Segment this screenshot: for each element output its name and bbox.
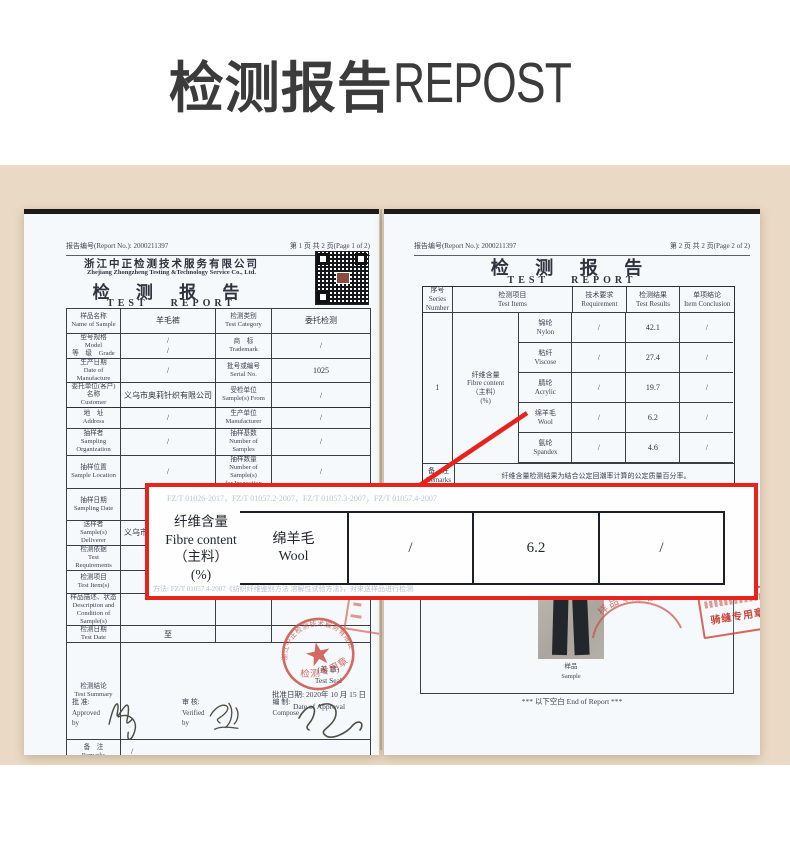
company-name-en: Zhejiang Zhongzheng Testing &Technology … bbox=[24, 269, 319, 276]
fiber-requirement: / bbox=[572, 403, 626, 433]
row-label-1: 检测依据 Test Requirements bbox=[67, 546, 121, 571]
callout-pointer-line bbox=[410, 406, 540, 490]
row-value-2: / bbox=[272, 429, 371, 456]
row-label-1: 生产日期 Date of Manufacture bbox=[67, 358, 121, 383]
row-label-1: 样品描述、状态 Description and Condition of Sam… bbox=[67, 593, 121, 626]
verify-signature-group: 审 核: Verified by bbox=[182, 691, 247, 739]
row-value-1: 羊毛裤 bbox=[121, 309, 216, 334]
approve-signature-group: 批 准: Approved by bbox=[72, 691, 156, 739]
row-value-1: 义乌市奥莉针织有限公司 bbox=[121, 383, 216, 408]
row-value-1: / bbox=[121, 358, 216, 383]
callout-table-row: 绵羊毛 Wool / 6.2 / bbox=[240, 511, 725, 585]
zoom-callout-box: FZ/T 01026-2017，FZ/T 01057.2-2007，FZ/T 0… bbox=[145, 483, 758, 600]
fiber-result: 19.7 bbox=[626, 373, 680, 403]
fiber-row: 腈纶 Acrylic / 19.7 / bbox=[519, 373, 734, 403]
fiber-conclusion: / bbox=[680, 433, 733, 463]
col-header-conclusion: 单项结论 Item Conclusion bbox=[680, 287, 734, 313]
remarks-label: 备 注 Remarks bbox=[67, 740, 121, 755]
compose-signature bbox=[293, 691, 373, 739]
fiber-conclusion: / bbox=[680, 403, 733, 433]
table-row: 委托单位(客户)名称 Customer 义乌市奥莉针织有限公司 受检单位 Sam… bbox=[67, 383, 371, 408]
row-label-2: 批号或编号 Serial No. bbox=[216, 358, 272, 383]
fiber-requirement: / bbox=[572, 433, 626, 463]
banner: 检测报告REPOST bbox=[0, 0, 790, 165]
table-row: 样品名称 Name of Sample 羊毛裤 检测类别 Test Catego… bbox=[67, 309, 371, 334]
row-value-1: / / bbox=[121, 334, 216, 359]
doc-title-en: TEST REPORT bbox=[384, 275, 760, 286]
verify-signature bbox=[204, 691, 247, 739]
row-label-1: 检测日期 Test Date bbox=[67, 626, 121, 643]
row-label-1: 抽样位置 Sample Location bbox=[67, 456, 121, 489]
fiber-row: 氨纶 Spandex / 4.6 / bbox=[519, 433, 734, 463]
results-table-header: 序号 Series Number 检测项目 Test Items 技术要求 Re… bbox=[423, 287, 734, 313]
row-value-1: 至 bbox=[121, 626, 216, 643]
row-label-2: 生产单位 Manufacturer bbox=[216, 408, 272, 429]
qr-finder-icon bbox=[317, 253, 329, 265]
row-label-2: 抽样基数 Number of Samples bbox=[216, 429, 272, 456]
row-value-2: / bbox=[272, 383, 371, 408]
row-label-2: 检测类别 Test Category bbox=[216, 309, 272, 334]
row-value-2: 1025 bbox=[272, 358, 371, 383]
approve-signature bbox=[100, 691, 157, 739]
row-label-2: 受检单位 Sample(s) From bbox=[216, 383, 272, 408]
table-row: 型号规格 Model 等 级 Grade / / 商 标 Trademark / bbox=[67, 334, 371, 359]
sample-seal-stamp: 样品专用章 bbox=[589, 594, 685, 654]
fiber-conclusion: / bbox=[680, 343, 733, 373]
end-of-report-text: *** 以下空白 End of Report *** bbox=[384, 696, 760, 707]
row-label-1: 委托单位(客户)名称 Customer bbox=[67, 383, 121, 408]
col-header-results: 检测结果 Test Results bbox=[627, 287, 681, 313]
table-row: 生产日期 Date of Manufacture / 批号或编号 Serial … bbox=[67, 358, 371, 383]
callout-faint-method-text: 方法: FZ/T 01057.4-2007《纺织纤维鉴别方法 溶解性试验方法》，… bbox=[153, 584, 415, 594]
screenshot-root: 检测报告REPOST 报告编号(Report No.): 2000211397 … bbox=[0, 0, 790, 851]
col-header-requirement: 技术要求 Requirement bbox=[573, 287, 627, 313]
fiber-conclusion: / bbox=[680, 313, 733, 343]
fiber-result: 6.2 bbox=[626, 403, 680, 433]
callout-result-cell: 6.2 bbox=[472, 513, 598, 583]
col-header-items: 检测项目 Test Items bbox=[453, 287, 573, 313]
fiber-name: 腈纶 Acrylic bbox=[519, 373, 572, 403]
table-row: 地 址 Address / 生产单位 Manufacturer / bbox=[67, 408, 371, 429]
remarks-row: 备 注 Remarks / bbox=[67, 740, 371, 755]
row-label-2: 商 标 Trademark bbox=[216, 334, 272, 359]
qr-code bbox=[316, 252, 368, 304]
fiber-row: 锦纶 Nylon / 42.1 / bbox=[519, 313, 734, 343]
bottom-margin bbox=[0, 765, 790, 851]
row-value-2: / bbox=[272, 408, 371, 429]
fiber-rows: 锦纶 Nylon / 42.1 / 粘纤 Viscose / 27.4 / bbox=[519, 313, 734, 463]
row-label-1: 样品名称 Name of Sample bbox=[67, 309, 121, 334]
fiber-name: 锦纶 Nylon bbox=[519, 313, 572, 343]
page2-report-no: 报告编号(Report No.): 2000211397 bbox=[414, 241, 516, 251]
fiber-row: 绵羊毛 Wool / 6.2 / bbox=[519, 403, 734, 433]
fiber-requirement: / bbox=[572, 313, 626, 343]
sample-photo-caption: 样品 Sample bbox=[538, 662, 604, 682]
page-seam-divider bbox=[380, 209, 382, 750]
table-row: 抽样者 Sampling Organization / 抽样基数 Number … bbox=[67, 429, 371, 456]
report-page-1: 报告编号(Report No.): 2000211397 第 1 页 共 2 页… bbox=[24, 209, 379, 755]
page1-report-no: 报告编号(Report No.): 2000211397 bbox=[66, 241, 168, 251]
row-label-1: 抽样日期 Sampling Date bbox=[67, 488, 121, 521]
qr-finder-icon bbox=[317, 291, 329, 303]
fiber-row: 粘纤 Viscose / 27.4 / bbox=[519, 343, 734, 373]
row-value-1: / bbox=[121, 429, 216, 456]
row-label-1: 检测项目 Test Item(s) bbox=[67, 570, 121, 593]
banner-title-en: REPOST bbox=[393, 50, 571, 116]
callout-conclusion-cell: / bbox=[598, 513, 725, 583]
callout-fibre-label: 纤维含量 Fibre content （主料） (%) bbox=[155, 513, 247, 583]
page2-page-no: 第 2 页 共 2 页(Page 2 of 2) bbox=[670, 241, 750, 251]
row-value-1: / bbox=[121, 408, 216, 429]
qr-center-logo bbox=[336, 272, 350, 284]
row-label-1: 送样者 Sample(s) Deliverer bbox=[67, 521, 121, 546]
signature-row: 批 准: Approved by 审 核: Verified by 编 制: C… bbox=[72, 691, 372, 739]
row-value-2: 委托检测 bbox=[272, 309, 371, 334]
fiber-conclusion: / bbox=[680, 373, 733, 403]
page1-page-no: 第 1 页 共 2 页(Page 1 of 2) bbox=[290, 241, 370, 251]
fiber-requirement: / bbox=[572, 343, 626, 373]
fiber-result: 42.1 bbox=[626, 313, 680, 343]
remarks-value: / bbox=[121, 740, 371, 755]
col-header-series: 序号 Series Number bbox=[423, 287, 453, 313]
callout-requirement-cell: / bbox=[347, 513, 472, 583]
doc-title-en-report: REPORT bbox=[571, 275, 636, 286]
callout-wool-cell: 绵羊毛 Wool bbox=[240, 513, 347, 583]
fiber-name: 粘纤 Viscose bbox=[519, 343, 572, 373]
callout-faint-standards-text: FZ/T 01026-2017，FZ/T 01057.2-2007，FZ/T 0… bbox=[167, 493, 437, 504]
row-label-1: 型号规格 Model 等 级 Grade bbox=[67, 334, 121, 359]
row-value-2: / bbox=[272, 334, 371, 359]
doc-title-en-test: TEST bbox=[508, 275, 550, 286]
fiber-result: 4.6 bbox=[626, 433, 680, 463]
row-label-1: 地 址 Address bbox=[67, 408, 121, 429]
qr-finder-icon bbox=[355, 253, 367, 265]
row-label-1: 抽样者 Sampling Organization bbox=[67, 429, 121, 456]
row-label-2 bbox=[216, 626, 272, 643]
fiber-result: 27.4 bbox=[626, 343, 680, 373]
banner-title-cn: 检测报告 bbox=[169, 43, 393, 123]
fiber-requirement: / bbox=[572, 373, 626, 403]
